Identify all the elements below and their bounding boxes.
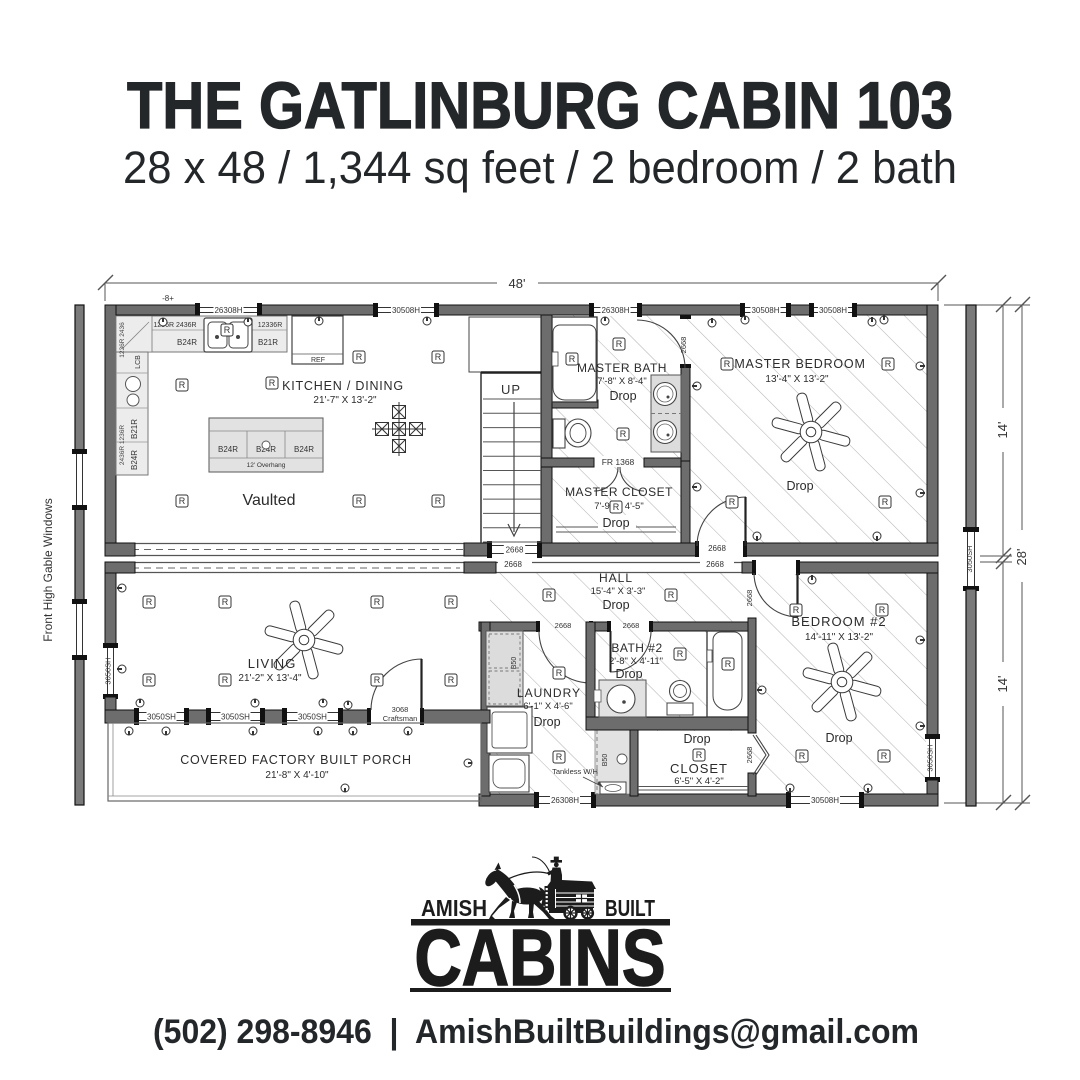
- svg-text:MASTER CLOSET: MASTER CLOSET: [565, 485, 673, 499]
- svg-text:R: R: [435, 496, 442, 506]
- svg-text:Front High Gable Windows: Front High Gable Windows: [41, 498, 55, 641]
- svg-text:7'-8" X 8'-4": 7'-8" X 8'-4": [597, 376, 646, 387]
- svg-text:3050SH: 3050SH: [926, 744, 935, 771]
- svg-text:Drop: Drop: [786, 479, 813, 493]
- svg-text:3050SH: 3050SH: [104, 657, 113, 684]
- svg-text:B21R: B21R: [130, 419, 139, 439]
- svg-text:Tankless W/H: Tankless W/H: [552, 767, 598, 776]
- svg-text:3068: 3068: [392, 705, 409, 714]
- svg-text:30508H: 30508H: [811, 796, 839, 805]
- svg-text:1236R 2436: 1236R 2436: [119, 322, 126, 358]
- svg-text:3050SH: 3050SH: [965, 545, 974, 572]
- svg-text:FR 1368: FR 1368: [602, 457, 635, 467]
- svg-text:R: R: [179, 496, 186, 506]
- svg-text:B50: B50: [602, 754, 609, 767]
- svg-text:REF: REF: [311, 357, 325, 364]
- svg-text:Craftsman: Craftsman: [383, 714, 418, 723]
- svg-text:Drop: Drop: [533, 715, 560, 729]
- svg-text:2668: 2668: [745, 590, 754, 607]
- svg-text:R: R: [179, 380, 186, 390]
- svg-text:KITCHEN / DINING: KITCHEN / DINING: [282, 379, 404, 393]
- svg-text:Drop: Drop: [609, 389, 636, 403]
- svg-text:LCB: LCB: [135, 355, 142, 369]
- svg-text:2668: 2668: [504, 560, 522, 569]
- svg-text:28': 28': [1014, 549, 1029, 566]
- svg-text:Drop: Drop: [615, 667, 642, 681]
- svg-text:30508H: 30508H: [819, 306, 847, 315]
- svg-text:MASTER BATH: MASTER BATH: [577, 361, 667, 375]
- svg-text:R: R: [448, 597, 455, 607]
- svg-text:BEDROOM #2: BEDROOM #2: [791, 614, 886, 629]
- svg-text:13'-4" X 13'-2": 13'-4" X 13'-2": [765, 374, 829, 385]
- svg-text:COVERED FACTORY BUILT PORCH: COVERED FACTORY BUILT PORCH: [180, 753, 412, 767]
- svg-text:Drop: Drop: [683, 732, 710, 746]
- svg-text:R: R: [882, 497, 889, 507]
- svg-text:CLOSET: CLOSET: [670, 761, 728, 776]
- svg-text:UP: UP: [501, 382, 521, 397]
- svg-text:R: R: [448, 675, 455, 685]
- svg-text:6'-1" X 4'-6": 6'-1" X 4'-6": [523, 701, 572, 712]
- svg-text:R: R: [222, 675, 229, 685]
- svg-text:14': 14': [995, 676, 1010, 693]
- svg-text:R: R: [677, 649, 684, 659]
- svg-text:Drop: Drop: [602, 516, 629, 530]
- svg-text:15'-4" X 3'-3": 15'-4" X 3'-3": [591, 586, 646, 597]
- svg-text:2'-8" X 4'-11": 2'-8" X 4'-11": [609, 656, 663, 667]
- svg-text:(502) 298-8946 | AmishBuiltB: (502) 298-8946 | AmishBuiltBuildings@gma…: [153, 1013, 919, 1051]
- svg-text:LIVING: LIVING: [248, 656, 297, 671]
- svg-text:R: R: [620, 429, 627, 439]
- svg-text:R: R: [224, 325, 231, 335]
- svg-text:2668: 2668: [555, 621, 572, 630]
- svg-text:B50: B50: [511, 657, 518, 670]
- svg-text:R: R: [356, 352, 363, 362]
- svg-text:HALL: HALL: [599, 571, 633, 585]
- svg-text:R: R: [435, 352, 442, 362]
- svg-text:3050SH: 3050SH: [147, 713, 176, 722]
- svg-text:R: R: [269, 378, 276, 388]
- svg-text:R: R: [668, 590, 675, 600]
- svg-text:2436R 1236R: 2436R 1236R: [119, 425, 126, 465]
- svg-text:26308H: 26308H: [601, 306, 629, 315]
- svg-text:LAUNDRY: LAUNDRY: [517, 686, 581, 700]
- svg-text:3050SH: 3050SH: [298, 713, 327, 722]
- svg-text:B21R: B21R: [258, 338, 278, 347]
- svg-text:21'-7" X 13'-2": 21'-7" X 13'-2": [313, 395, 377, 406]
- svg-text:B24R: B24R: [177, 338, 197, 347]
- svg-text:R: R: [885, 359, 892, 369]
- svg-text:R: R: [799, 751, 806, 761]
- svg-text:30508H: 30508H: [392, 306, 420, 315]
- svg-text:R: R: [556, 668, 563, 678]
- svg-text:R: R: [146, 675, 153, 685]
- svg-text:R: R: [881, 751, 888, 761]
- svg-text:R: R: [556, 752, 563, 762]
- svg-text:R: R: [879, 605, 886, 615]
- svg-text:BATH #2: BATH #2: [611, 641, 662, 655]
- svg-text:R: R: [696, 750, 703, 760]
- svg-text:14': 14': [995, 422, 1010, 439]
- svg-text:28 x 48 / 1,344 sq feet / 2 be: 28 x 48 / 1,344 sq feet / 2 bedroom / 2 …: [123, 142, 957, 193]
- svg-text:R: R: [374, 675, 381, 685]
- svg-text:2668: 2668: [623, 621, 640, 630]
- svg-text:R: R: [146, 597, 153, 607]
- svg-text:R: R: [569, 354, 576, 364]
- svg-text:B24R: B24R: [218, 445, 238, 454]
- svg-text:48': 48': [509, 276, 526, 291]
- svg-text:14'-11" X 13'-2": 14'-11" X 13'-2": [805, 632, 873, 643]
- svg-text:R: R: [725, 659, 732, 669]
- svg-text:2668: 2668: [706, 560, 724, 569]
- svg-text:21'-2" X 13'-4": 21'-2" X 13'-4": [238, 673, 302, 684]
- svg-text:Drop: Drop: [602, 598, 629, 612]
- svg-text:THE GATLINBURG CABIN 103: THE GATLINBURG CABIN 103: [127, 68, 953, 142]
- svg-text:R: R: [729, 497, 736, 507]
- svg-text:2668: 2668: [708, 544, 726, 553]
- svg-text:R: R: [616, 339, 623, 349]
- svg-text:B24R: B24R: [294, 445, 314, 454]
- svg-text:3050SH: 3050SH: [221, 713, 250, 722]
- svg-text:R: R: [374, 597, 381, 607]
- svg-text:-8+: -8+: [162, 294, 174, 303]
- svg-text:R: R: [793, 605, 800, 615]
- svg-text:12' Overhang: 12' Overhang: [247, 462, 286, 469]
- svg-text:2668: 2668: [506, 546, 524, 555]
- svg-text:2668: 2668: [745, 747, 754, 764]
- svg-text:12336R: 12336R: [258, 322, 283, 329]
- svg-text:R: R: [724, 359, 731, 369]
- svg-text:26308H: 26308H: [551, 796, 579, 805]
- svg-text:R: R: [356, 496, 363, 506]
- svg-text:2668: 2668: [679, 337, 688, 354]
- svg-text:R: R: [546, 590, 553, 600]
- svg-text:6'-5" X 4'-2": 6'-5" X 4'-2": [674, 776, 723, 787]
- svg-text:21'-8" X 4'-10": 21'-8" X 4'-10": [265, 770, 329, 781]
- svg-text:B24R: B24R: [130, 450, 139, 470]
- svg-text:Vaulted: Vaulted: [242, 492, 295, 509]
- svg-text:MASTER BEDROOM: MASTER BEDROOM: [734, 357, 865, 371]
- svg-text:R: R: [613, 502, 620, 512]
- svg-text:30508H: 30508H: [751, 306, 779, 315]
- svg-text:Drop: Drop: [825, 731, 852, 745]
- svg-text:R: R: [222, 597, 229, 607]
- svg-text:26308H: 26308H: [214, 306, 242, 315]
